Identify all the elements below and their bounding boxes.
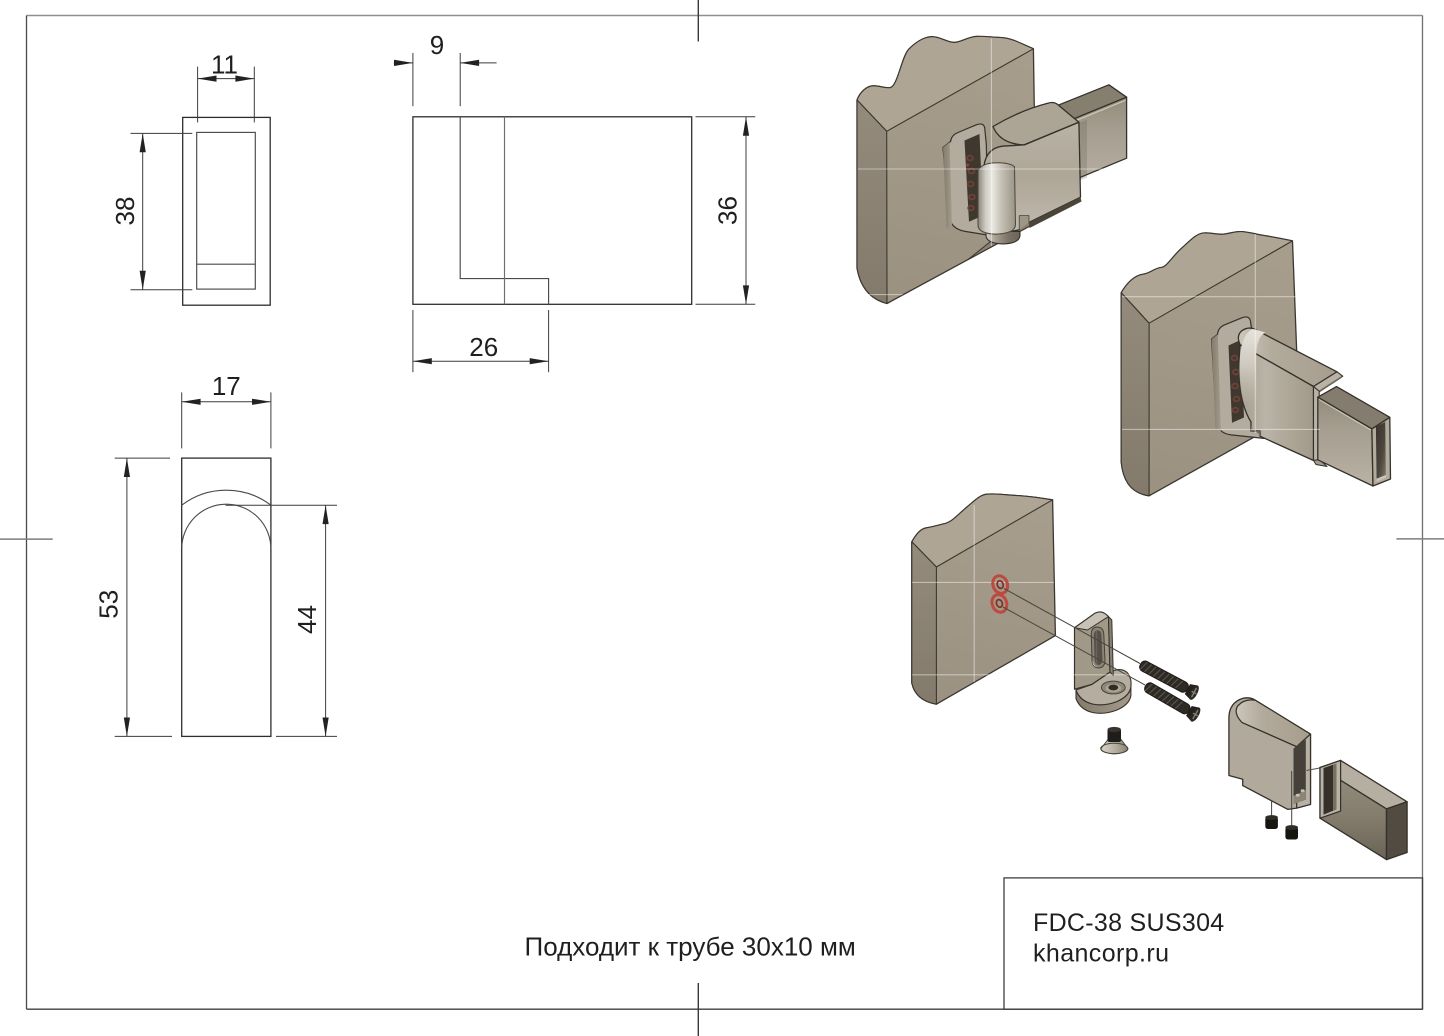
svg-text:9: 9 [430,30,444,60]
svg-text:khancorp.ru: khancorp.ru [1033,939,1169,967]
svg-text:38: 38 [110,197,140,226]
svg-text:26: 26 [469,332,498,362]
svg-text:17: 17 [212,371,241,401]
svg-text:36: 36 [713,196,743,225]
svg-text:FDC-38 SUS304: FDC-38 SUS304 [1033,909,1224,937]
svg-text:11: 11 [211,50,238,80]
svg-text:53: 53 [94,590,124,619]
svg-text:Подходит к трубе 30х10 мм: Подходит к трубе 30х10 мм [525,931,856,961]
svg-text:44: 44 [292,605,322,634]
